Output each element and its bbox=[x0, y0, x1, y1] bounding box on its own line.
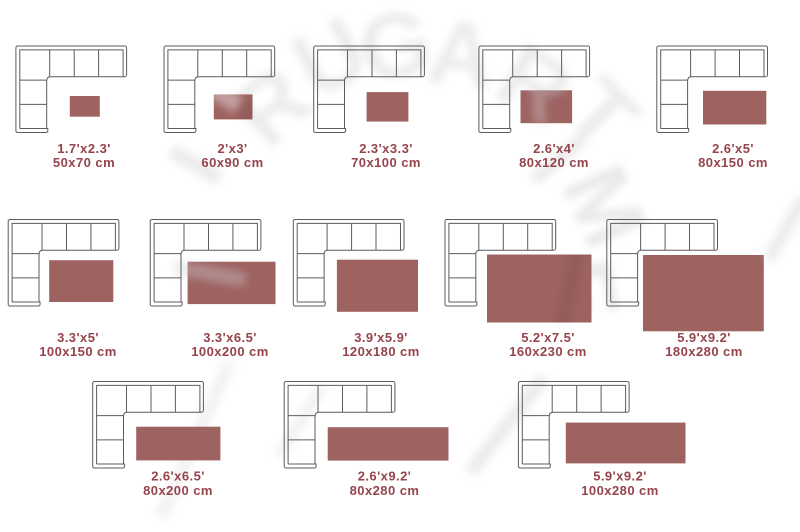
svg-text:50x70 cm: 50x70 cm bbox=[53, 155, 115, 170]
svg-text:3.3'x6.5': 3.3'x6.5' bbox=[203, 330, 257, 345]
svg-text:3.3'x5': 3.3'x5' bbox=[57, 330, 99, 345]
svg-text:A: A bbox=[422, 0, 502, 110]
svg-text:100x200 cm: 100x200 cm bbox=[191, 344, 269, 359]
svg-text:3.9'x5.9': 3.9'x5.9' bbox=[354, 330, 408, 345]
svg-text:120x180 cm: 120x180 cm bbox=[342, 344, 420, 359]
svg-text:60x90 cm: 60x90 cm bbox=[201, 155, 263, 170]
svg-text:80x200 cm: 80x200 cm bbox=[143, 483, 213, 498]
svg-text:180x280 cm: 180x280 cm bbox=[665, 344, 743, 359]
svg-text:2'x3': 2'x3' bbox=[217, 141, 247, 156]
svg-text:2.6'x9.2': 2.6'x9.2' bbox=[358, 469, 412, 484]
svg-text:2.6'x6.5': 2.6'x6.5' bbox=[151, 469, 205, 484]
svg-text:80x150 cm: 80x150 cm bbox=[698, 155, 768, 170]
svg-text:80x120 cm: 80x120 cm bbox=[519, 155, 589, 170]
svg-text:2.3'x3.3': 2.3'x3.3' bbox=[359, 141, 413, 156]
svg-text:100x280 cm: 100x280 cm bbox=[581, 483, 659, 498]
svg-text:160x230 cm: 160x230 cm bbox=[509, 344, 587, 359]
svg-text:2.6'x5': 2.6'x5' bbox=[712, 141, 754, 156]
svg-text:70x100 cm: 70x100 cm bbox=[351, 155, 421, 170]
svg-text:2.6'x4': 2.6'x4' bbox=[533, 141, 575, 156]
svg-text:5.9'x9.2': 5.9'x9.2' bbox=[677, 330, 731, 345]
svg-text:1.7'x2.3': 1.7'x2.3' bbox=[57, 141, 111, 156]
svg-text:80x280 cm: 80x280 cm bbox=[350, 483, 420, 498]
svg-text:5.9'x9.2': 5.9'x9.2' bbox=[593, 469, 647, 484]
svg-text:5.2'x7.5': 5.2'x7.5' bbox=[521, 330, 575, 345]
svg-text:100x150 cm: 100x150 cm bbox=[39, 344, 117, 359]
